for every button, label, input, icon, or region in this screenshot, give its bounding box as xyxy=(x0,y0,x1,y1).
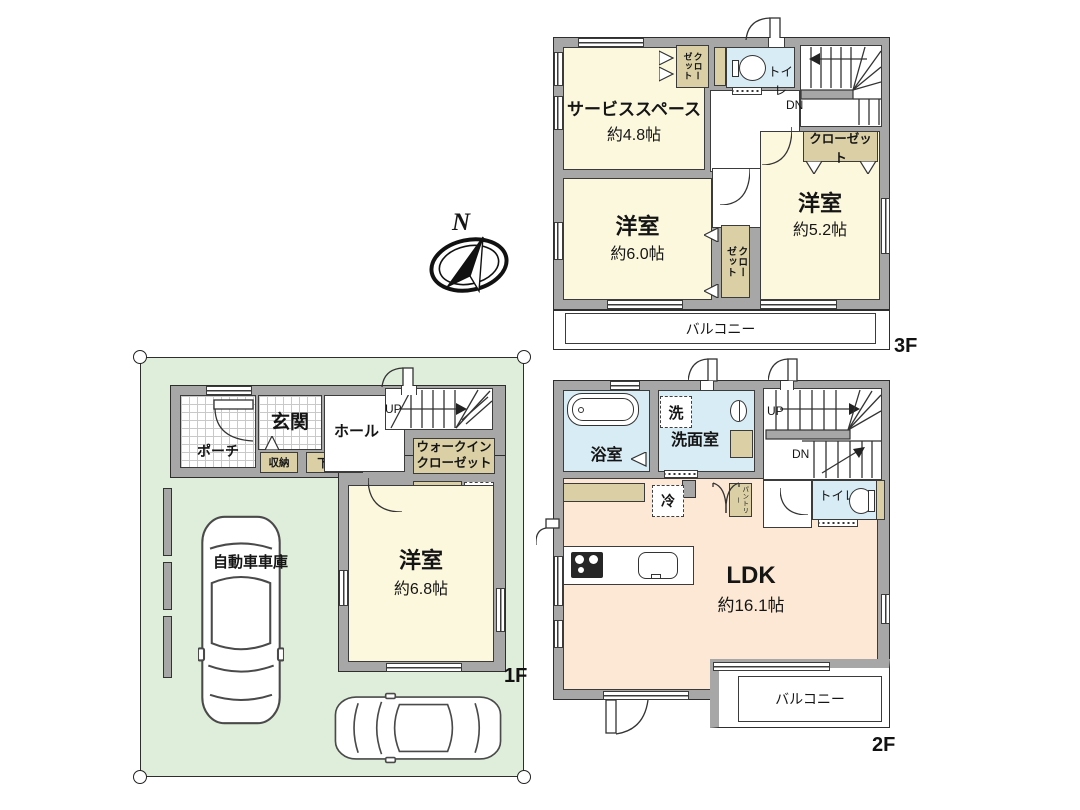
room-name: 浴室 xyxy=(590,447,622,465)
door-arc-icon xyxy=(762,127,792,165)
closet-door-mark-icon xyxy=(860,161,876,174)
sink-faucet xyxy=(739,401,741,421)
window xyxy=(339,570,348,606)
toilet-room-3f: トイレ xyxy=(726,47,795,88)
room-name: 玄関 xyxy=(271,412,309,434)
balcony-floor: バルコニー xyxy=(565,313,876,344)
site-corner-marker xyxy=(517,770,531,784)
toilet-room-2f: トイレ xyxy=(812,480,877,520)
window xyxy=(554,222,563,260)
floor1-label: 1F xyxy=(504,665,527,688)
garage-wall-segment xyxy=(163,488,172,556)
wall-stub xyxy=(682,480,696,498)
window xyxy=(206,386,252,395)
room-name: LDK xyxy=(641,562,861,590)
closet-top: クローゼット xyxy=(676,45,709,88)
floor-plan-page: N サービススペース 約4.8帖 洋室 約6.0帖 洋室 約5.2帖 クローゼッ… xyxy=(0,0,1080,810)
sliding-window xyxy=(386,663,462,672)
stairs-up-label: UP xyxy=(385,403,402,416)
door-arc-icon xyxy=(780,488,808,515)
window xyxy=(760,300,837,309)
bath-door-mark-icon xyxy=(631,452,647,467)
room-size: 約4.8帖 xyxy=(607,126,661,145)
storage-label: 収納 xyxy=(269,455,290,470)
burner xyxy=(578,567,584,573)
door-gap xyxy=(768,38,785,47)
storage-box: 収納 xyxy=(260,452,298,473)
stairs-dn-label: DN xyxy=(786,99,803,112)
folding-door-icon xyxy=(659,50,677,82)
window xyxy=(881,594,890,624)
towel-rail xyxy=(732,87,762,95)
exterior-door-icon xyxy=(688,356,720,383)
closet-door-mark-icon xyxy=(704,228,719,242)
floor3-label: 3F xyxy=(894,335,917,358)
burner xyxy=(589,555,598,564)
closet-label: クローゼット xyxy=(804,128,877,166)
toilet-tank-icon xyxy=(732,60,739,77)
toilet-side-counter xyxy=(876,480,885,520)
towel-rail xyxy=(818,519,858,527)
door-gap xyxy=(700,381,714,390)
bathtub-drain xyxy=(578,407,584,413)
car-icon xyxy=(332,689,504,767)
floor2-label: 2F xyxy=(872,734,895,757)
walk-in-closet: ウォークインクローゼット xyxy=(413,438,495,474)
window xyxy=(554,620,563,648)
toilet-label: トイレ xyxy=(767,61,794,99)
closet-mid: クローゼット xyxy=(721,225,750,298)
door-gap xyxy=(780,381,794,390)
stairs-2f xyxy=(763,388,882,480)
compass-icon xyxy=(427,234,511,296)
stairs-3f xyxy=(800,45,882,127)
sink-icon xyxy=(730,400,747,422)
closet-label: クローゼット xyxy=(724,242,746,282)
room-size: 約5.2帖 xyxy=(793,221,847,240)
toilet-counter xyxy=(714,47,726,86)
balcony-floor: バルコニー xyxy=(738,676,882,722)
towel-rail xyxy=(664,470,698,478)
balcony-label: バルコニー xyxy=(686,319,756,339)
balcony-label: バルコニー xyxy=(775,689,845,709)
closet-door-mark-icon xyxy=(704,284,719,298)
door-gap xyxy=(401,386,417,395)
toilet-tank-icon xyxy=(868,490,875,512)
room-name: サービススペース xyxy=(567,100,701,120)
washroom-counter xyxy=(730,430,753,458)
window xyxy=(610,381,640,390)
window xyxy=(603,691,689,700)
exterior-door-icon xyxy=(604,698,650,736)
window xyxy=(607,300,683,309)
hall-label: ホール xyxy=(334,424,379,441)
stairs-icon xyxy=(764,389,881,479)
room-size: 約16.1帖 xyxy=(641,596,861,616)
room-name: 洋室 xyxy=(798,191,842,216)
room-name: 洋室 xyxy=(615,214,659,239)
door-stop-mark-icon xyxy=(265,436,279,450)
stairs-dn-label: DN xyxy=(792,448,809,461)
garage-label: 自動車車庫 xyxy=(213,555,288,572)
exterior-door-icon xyxy=(768,356,800,383)
window xyxy=(554,556,563,606)
window xyxy=(496,588,505,632)
fridge-label: 冷 xyxy=(661,491,675,511)
stove-icon xyxy=(571,552,603,578)
window xyxy=(578,38,644,47)
room-name: ポーチ xyxy=(197,441,239,461)
garage-wall-segment xyxy=(163,616,172,678)
site-corner-marker xyxy=(133,350,147,364)
site-corner-marker xyxy=(133,770,147,784)
exterior-door-icon xyxy=(536,518,560,546)
washer-label: 洗 xyxy=(668,402,683,423)
car-icon xyxy=(198,512,284,728)
window xyxy=(554,52,563,86)
entrance-door-icon xyxy=(212,399,256,443)
stairs-icon xyxy=(386,389,492,429)
closet-label: クローゼット xyxy=(682,49,702,85)
door-arc-icon xyxy=(720,168,750,205)
room-yoshitsu-6: 洋室 約6.0帖 xyxy=(563,178,712,300)
bathtub-icon xyxy=(567,393,639,426)
room-name: 洋室 xyxy=(399,548,443,573)
garage-wall-segment xyxy=(163,562,172,610)
closet-door-mark-icon xyxy=(806,161,822,174)
washroom-label: 洗面室 xyxy=(671,432,719,450)
site-corner-marker xyxy=(517,350,531,364)
room-size: 約6.8帖 xyxy=(394,580,448,599)
ldk-text: LDK 約16.1帖 xyxy=(641,562,861,616)
wic-label: ウォークインクローゼット xyxy=(415,440,493,471)
double-door-icon xyxy=(710,481,742,515)
refrigerator: 冷 xyxy=(652,485,684,517)
washing-machine: 洗 xyxy=(660,396,692,428)
balcony-3f: バルコニー xyxy=(553,310,890,350)
toilet-bowl-icon xyxy=(739,55,766,81)
sliding-window xyxy=(713,662,830,671)
room-size: 約6.0帖 xyxy=(610,245,664,264)
ldk-counter xyxy=(563,483,645,502)
door-arc-icon xyxy=(368,478,402,512)
compass-north-label: N xyxy=(452,209,470,237)
burner xyxy=(575,555,584,564)
window xyxy=(554,96,563,130)
closet-right: クローゼット xyxy=(803,131,878,162)
stairs-icon xyxy=(801,46,881,126)
stairs-up-label: UP xyxy=(767,405,784,418)
window xyxy=(881,198,890,254)
